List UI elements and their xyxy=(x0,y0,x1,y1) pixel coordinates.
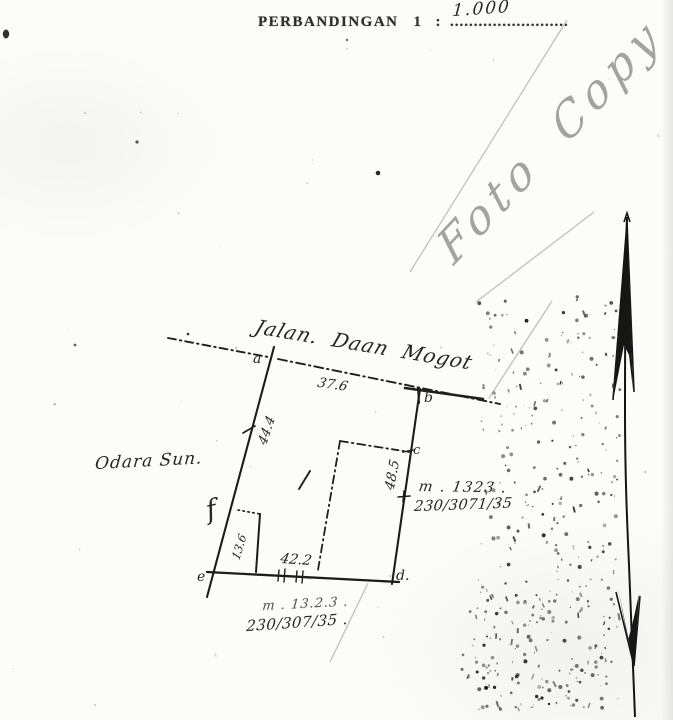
parcel-ref-east-line1: m . 1323 . xyxy=(417,479,508,497)
corner-a: a xyxy=(253,351,261,367)
corner-d: d. xyxy=(396,568,409,584)
edge-arrow-marks xyxy=(613,213,640,717)
measure-south-side: 42.2 xyxy=(279,551,313,569)
corner-b: b xyxy=(424,390,433,406)
notch-line xyxy=(256,514,260,572)
scanned-document-page: PERBANDINGAN 1 : .......................… xyxy=(0,0,673,720)
edge-arrow-bottom xyxy=(618,588,639,666)
notch-dotted xyxy=(238,510,260,514)
west-tick xyxy=(243,426,255,433)
corner-c: c xyxy=(413,443,420,458)
corner-e: e xyxy=(197,569,205,585)
center-slash-mark xyxy=(299,471,310,489)
